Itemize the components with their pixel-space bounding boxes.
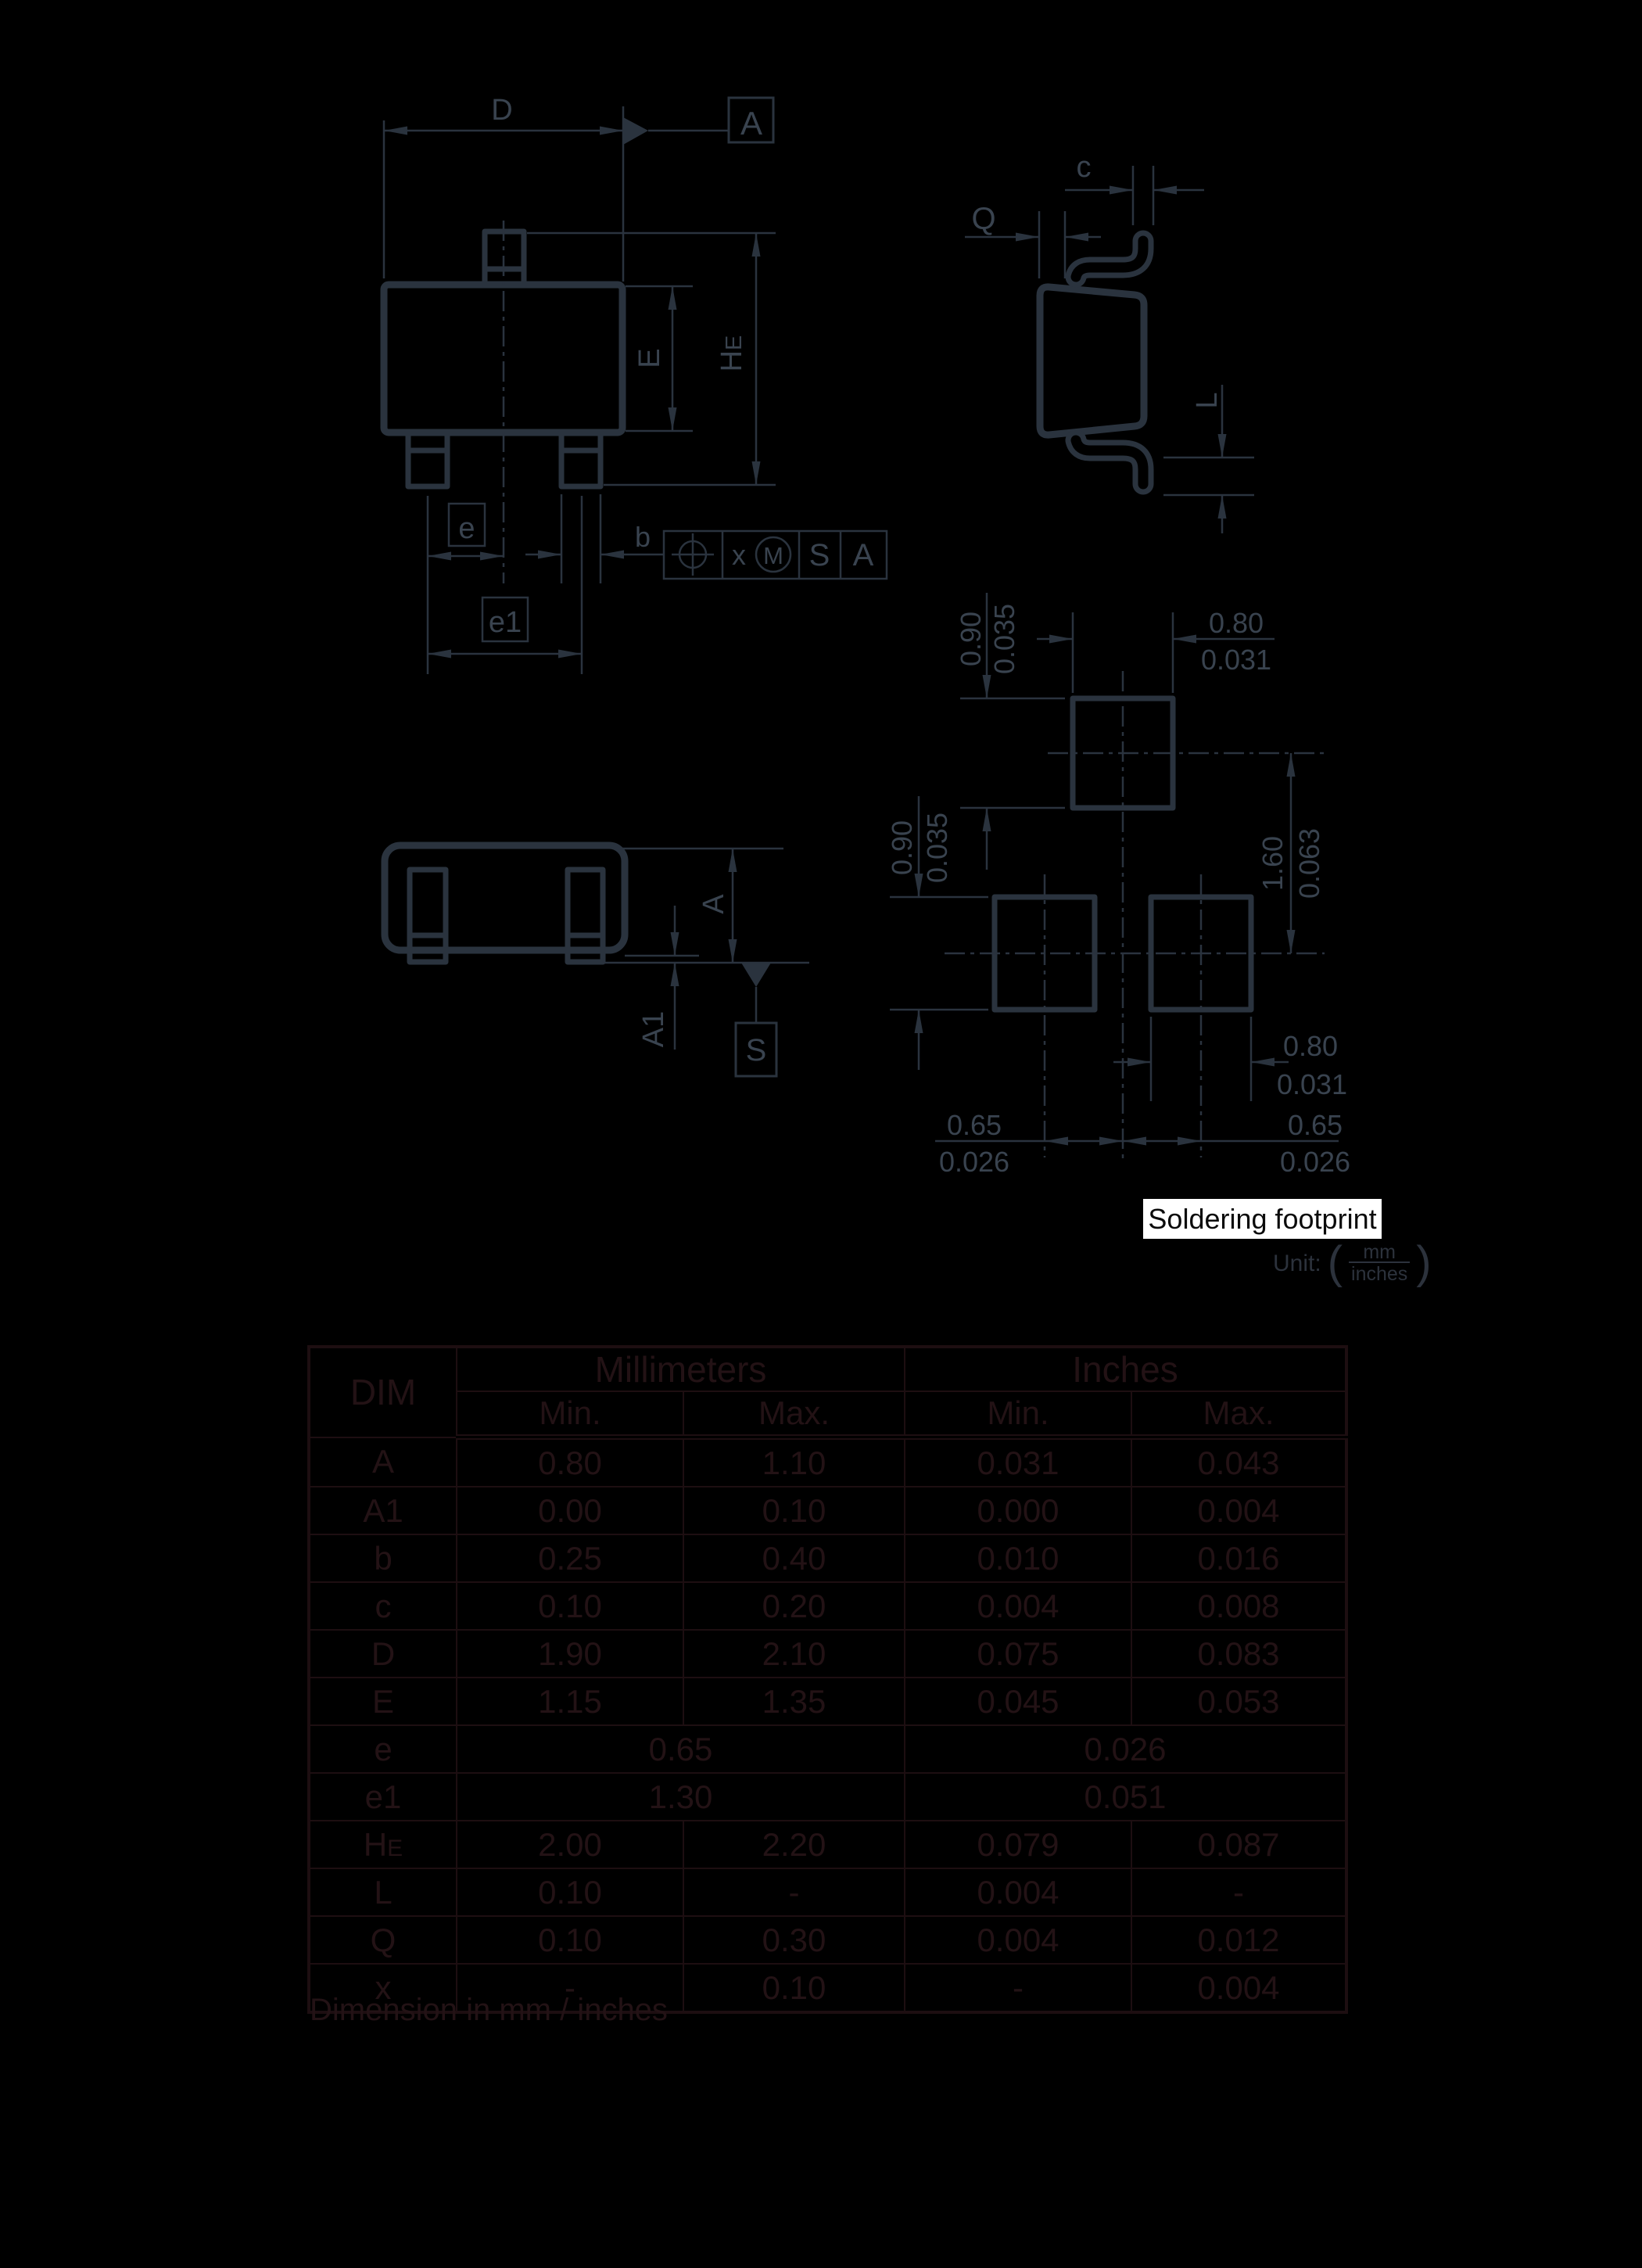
mmc-modifier-letter: M (763, 542, 783, 569)
botpad-height-mm: 0.90 (886, 820, 918, 875)
dim-label-d: D (491, 94, 512, 127)
unit-paren-close: ) (1416, 1245, 1431, 1281)
header-millimeters: Millimeters (457, 1347, 905, 1391)
table-row: b0.250.400.0100.016 (309, 1534, 1346, 1582)
front-view: A A1 S (385, 845, 809, 1076)
dim-label-e-body: E (633, 348, 666, 368)
dim-label-l: L (1191, 392, 1224, 408)
unit-paren-open: ( (1328, 1245, 1343, 1281)
table-row-merged: e0.650.026 (309, 1725, 1346, 1773)
toppad-width-in: 0.031 (1201, 644, 1271, 676)
datum-s-label: S (746, 1033, 767, 1068)
fcf-datum-s: S (809, 538, 830, 572)
pitch-vertical-in: 0.063 (1293, 828, 1325, 899)
soldering-footprint: 0.90 0.035 0.80 0.031 1.60 0.063 0.90 0.… (886, 593, 1350, 1178)
dimension-table: DIM Millimeters Inches Min. Max. Min. Ma… (307, 1345, 1348, 2014)
botpad-width-in: 0.031 (1277, 1068, 1347, 1100)
table-header-row-units: DIM Millimeters Inches (309, 1347, 1346, 1391)
pin3-lead (561, 432, 601, 486)
table-row: D1.902.100.0750.083 (309, 1630, 1346, 1678)
pin1-lead (408, 432, 447, 486)
pitch-right-in: 0.026 (1280, 1146, 1350, 1178)
pitch-left-mm: 0.65 (947, 1109, 1002, 1141)
table-row: L0.10-0.004- (309, 1868, 1346, 1916)
header-in-max: Max. (1131, 1391, 1346, 1437)
table-row: HE2.002.200.0790.087 (309, 1821, 1346, 1868)
unit-legend: Unit: ( mm inches ) (1273, 1242, 1432, 1285)
table-row: Q0.100.300.0040.012 (309, 1916, 1346, 1964)
table-row: A0.801.100.0310.043 (309, 1437, 1346, 1487)
soldering-footprint-title: Soldering footprint (1143, 1199, 1382, 1239)
dim-label-he: HE (715, 336, 748, 372)
botpad-height-in: 0.035 (921, 813, 953, 883)
header-inches: Inches (905, 1347, 1346, 1391)
fcf-tolerance-value: x (732, 539, 746, 571)
package-body-side-view (1040, 287, 1144, 435)
toppad-width-mm: 0.80 (1209, 607, 1264, 639)
feature-control-frame: x M S A (664, 531, 887, 579)
unit-label: Unit: (1273, 1251, 1321, 1277)
unit-fraction: mm inches (1349, 1242, 1410, 1285)
header-in-min: Min. (905, 1391, 1131, 1437)
table-footnote: Dimension in mm / inches (310, 1993, 668, 2028)
pitch-vertical-mm: 1.60 (1257, 836, 1289, 891)
dim-label-e1: e1 (489, 606, 522, 639)
table-header-row-minmax: Min. Max. Min. Max. (309, 1391, 1346, 1437)
dim-label-q: Q (971, 202, 995, 236)
side-view: c Q L (965, 151, 1254, 533)
header-mm-max: Max. (683, 1391, 905, 1437)
toppad-height-mm: 0.90 (955, 612, 987, 666)
datum-s-triangle-icon (741, 963, 771, 987)
pitch-left-in: 0.026 (939, 1146, 1009, 1178)
dim-label-a1: A1 (637, 1011, 670, 1047)
header-dim: DIM (309, 1347, 457, 1437)
datum-a-label: A (740, 105, 762, 142)
dim-label-c: c (1077, 151, 1092, 184)
toppad-height-in: 0.035 (988, 604, 1020, 674)
dim-label-b: b (635, 521, 651, 553)
dimension-table-container: DIM Millimeters Inches Min. Max. Min. Ma… (307, 1345, 1348, 2014)
datasheet-package-drawing-page: D A E HE e e1 b (0, 0, 1642, 2268)
dim-label-a: A (697, 894, 730, 914)
table-row: A10.000.100.0000.004 (309, 1487, 1346, 1534)
dim-label-e-pitch: e (458, 512, 475, 545)
table-row: c0.100.200.0040.008 (309, 1582, 1346, 1630)
fcf-datum-a: A (853, 538, 874, 572)
table-row-merged: e11.300.051 (309, 1773, 1346, 1821)
table-row: E1.151.350.0450.053 (309, 1678, 1346, 1725)
datum-a-triangle-icon (623, 117, 648, 145)
top-view: D A E HE e e1 b (384, 94, 887, 674)
pitch-right-mm: 0.65 (1288, 1109, 1343, 1141)
unit-denominator: inches (1349, 1261, 1410, 1285)
unit-numerator: mm (1363, 1241, 1396, 1263)
botpad-width-mm: 0.80 (1283, 1030, 1338, 1062)
header-mm-min: Min. (457, 1391, 683, 1437)
